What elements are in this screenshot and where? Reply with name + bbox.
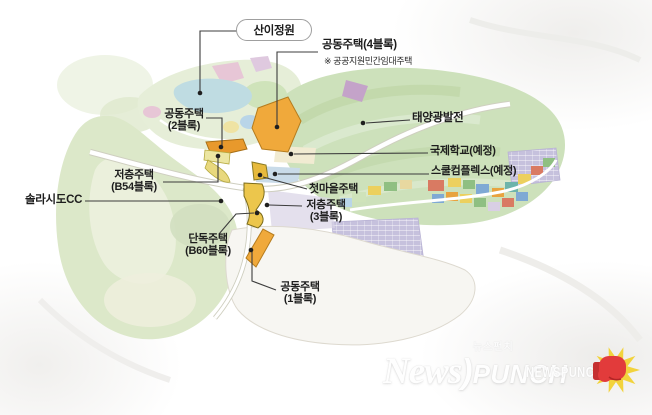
dot-apt-4: [275, 125, 280, 130]
label-apt-2: 공동주택 (2블록): [157, 108, 211, 132]
label-apt-4: 공동주택(4블록): [322, 39, 397, 51]
label-first-village: 첫마을주택: [309, 183, 358, 195]
news-photo-land-use-map: 산이정원 공동주택(4블록) ※ 공공지원민간임대주택 공동주택 (2블록) 저…: [0, 0, 652, 415]
label-low-3: 저층주택 (3블록): [303, 199, 349, 223]
label-low-3-line2: (3블록): [303, 211, 349, 223]
label-solaseado-cc: 솔라시도CC: [25, 194, 82, 206]
watermark-paren: ): [461, 353, 472, 391]
label-sani-garden-text: 산이정원: [253, 22, 294, 38]
label-single-b60-line2: (B60블록): [178, 245, 238, 257]
dot-apt-2: [219, 145, 224, 150]
label-apt-2-line2: (2블록): [157, 120, 211, 132]
newspunch-watermark: 뉴스펀치 News)PUNCH NEWSPUNCH: [380, 338, 652, 410]
dot-sani-garden: [198, 91, 203, 96]
dot-school-complex: [273, 172, 278, 177]
dot-solaseado-cc: [219, 199, 224, 204]
label-apt-4-note: ※ 공공지원민간임대주택: [324, 54, 412, 67]
label-solar: 태양광발전: [412, 112, 463, 124]
label-apt-1-line1: 공동주택: [274, 281, 326, 293]
glove-thumb: [598, 368, 612, 382]
label-apt-1: 공동주택 (1블록): [274, 281, 326, 305]
label-school-complex: 스쿨컴플렉스(예정): [431, 165, 516, 177]
label-sani-garden: 산이정원: [236, 19, 312, 41]
label-apt-1-line2: (1블록): [274, 293, 326, 305]
dot-apt-1: [249, 248, 254, 253]
dot-intl-school: [289, 152, 294, 157]
label-single-b60-line1: 단독주택: [178, 233, 238, 245]
label-intl-school: 국제학교(예정): [430, 145, 496, 157]
label-low-b54-line2: (B54블록): [103, 181, 165, 193]
dot-first-village: [258, 173, 263, 178]
dot-low-b54: [216, 154, 221, 159]
label-apt-2-line1: 공동주택: [157, 108, 211, 120]
dot-single-b60: [255, 211, 260, 216]
dot-low-3: [265, 203, 270, 208]
golf-fairway: [104, 273, 196, 327]
dot-solar: [361, 121, 366, 126]
parcel-yellow: [223, 121, 239, 133]
watermark-news-text: News: [383, 351, 461, 392]
label-single-b60: 단독주택 (B60블록): [178, 233, 238, 257]
label-low-b54-line1: 저층주택: [103, 169, 165, 181]
label-low-b54: 저층주택 (B54블록): [103, 169, 165, 193]
label-low-3-line1: 저층주택: [303, 199, 349, 211]
